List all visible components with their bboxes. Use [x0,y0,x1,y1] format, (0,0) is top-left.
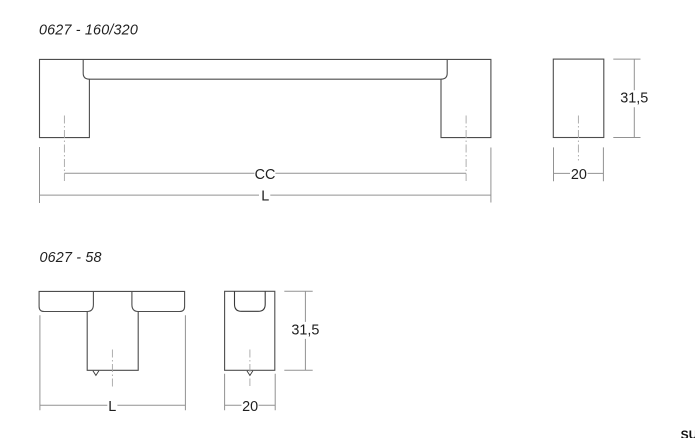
svg-text:0627 - 160/320: 0627 - 160/320 [39,23,138,39]
svg-text:L: L [108,399,116,415]
svg-text:CC: CC [255,167,276,183]
svg-text:20: 20 [242,399,258,415]
svg-text:31,5: 31,5 [291,323,319,339]
svg-text:L: L [261,189,269,205]
svg-text:SU: SU [681,428,695,438]
svg-text:0627 - 58: 0627 - 58 [40,250,102,266]
svg-text:20: 20 [571,167,587,183]
svg-text:31,5: 31,5 [620,91,648,107]
